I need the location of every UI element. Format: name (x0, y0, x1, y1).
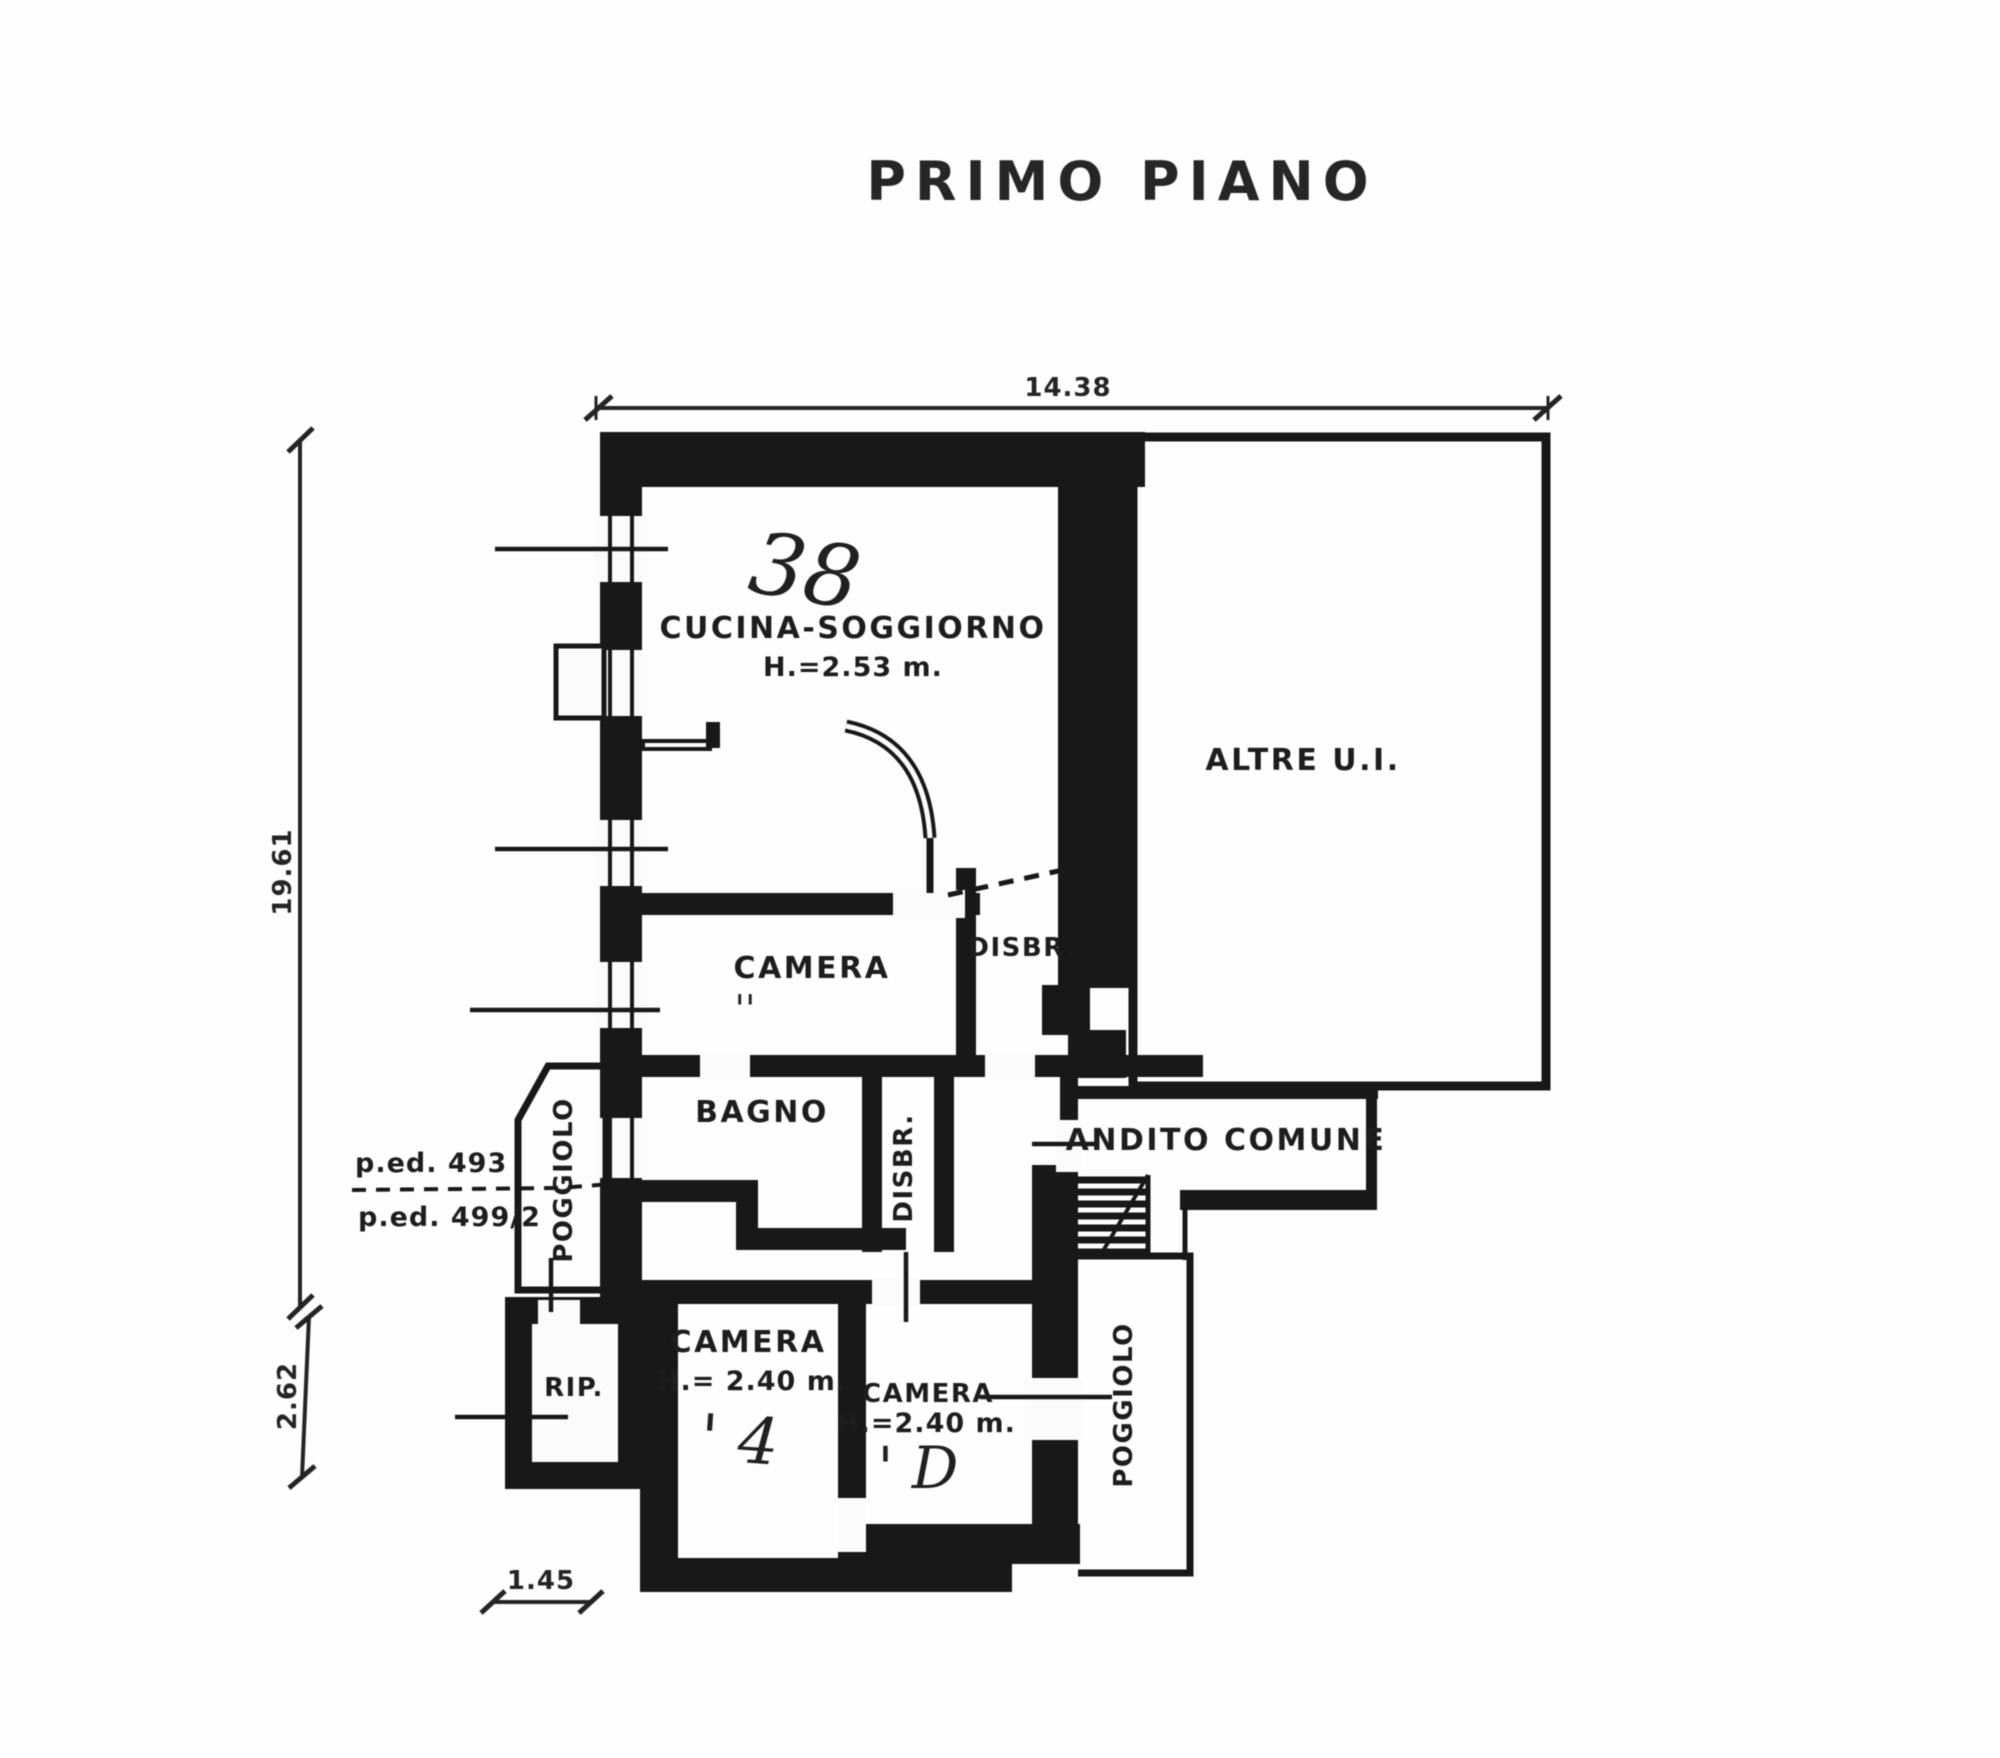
handwritten-camera-left-mark: ' 4 (698, 1401, 782, 1480)
room-label-andito-comune: ANDITO COMUNE (1066, 1123, 1387, 1158)
dimension-bottom: 1.45 (481, 1566, 603, 1613)
handwritten-camera-mid-mark: '' (735, 987, 756, 1031)
wall-bottom-rooms-top (613, 1280, 1078, 1304)
window-opening (594, 820, 648, 886)
door-cucina-left (642, 722, 720, 748)
room-label-bagno: BAGNO (695, 1095, 829, 1130)
parcel-upper-label: p.ed. 493 (355, 1148, 507, 1179)
room-height-camera-left: H.= 2.40 m. (657, 1366, 847, 1397)
page-title: PRIMO PIANO (866, 150, 1377, 213)
dimension-top: 14.38 (585, 373, 1561, 420)
floor-plan-drawing: PRIMO PIANO 14.38 19.61 2.62 1.45 (0, 0, 2000, 1758)
handwritten-unit-number: 38 (742, 513, 867, 630)
dimension-bottom-value: 1.45 (507, 1566, 575, 1596)
wall-andito-bottom (1180, 1190, 1377, 1210)
stairs (1078, 1175, 1185, 1260)
room-label-rip: RIP. (544, 1373, 604, 1403)
door-opening (838, 1498, 866, 1552)
wall-disbc-left (862, 1077, 882, 1252)
wall-right-lower (1032, 1165, 1078, 1537)
room-label-disbr: DISBR. (967, 933, 1076, 963)
door-opening (872, 1277, 920, 1307)
room-height-cucina: H.=2.53 m. (763, 652, 943, 683)
room-label-poggiolo-left: POGGIOLO (549, 1097, 579, 1262)
dimension-left-value: 19.61 (268, 828, 298, 915)
room-label-altre-ui: ALTRE U.I. (1205, 743, 1400, 778)
wall-disbc-right (934, 1077, 954, 1252)
room-label-cucina: CUCINA-SOGGIORNO (659, 611, 1046, 646)
dimension-left: 19.61 (268, 428, 313, 1319)
room-label-disbr-vertical: DISBR. (889, 1113, 919, 1222)
room-label-camera-left: CAMERA (670, 1325, 827, 1360)
room-label-camera-right: CAMERA (862, 1379, 994, 1409)
window-opening (594, 962, 648, 1028)
parcel-lower-label: p.ed. 499/2 (358, 1202, 541, 1233)
wall-shaft-step (1042, 985, 1090, 1035)
dimension-top-value: 14.38 (1024, 373, 1111, 403)
dimension-left-lower: 2.62 (273, 1306, 322, 1488)
door-opening (985, 1052, 1035, 1080)
window-opening (594, 1118, 648, 1178)
window-opening (1024, 1378, 1084, 1440)
door-swing-cucina (846, 726, 930, 893)
dimension-left-lower-value: 2.62 (273, 1362, 303, 1430)
door-opening (538, 1300, 580, 1324)
handwritten-camera-right-mark: ' D (878, 1434, 959, 1502)
wall-andito-top (1078, 1086, 1378, 1099)
wall-shaft (1058, 432, 1130, 988)
door-opening (700, 1052, 750, 1080)
scanned-floor-plan-page: PRIMO PIANO 14.38 19.61 2.62 1.45 (0, 0, 2000, 1758)
room-label-poggiolo-right: POGGIOLO (1109, 1322, 1139, 1487)
wall-box-icon (556, 646, 604, 718)
room-label-camera-mid: CAMERA (734, 951, 891, 986)
